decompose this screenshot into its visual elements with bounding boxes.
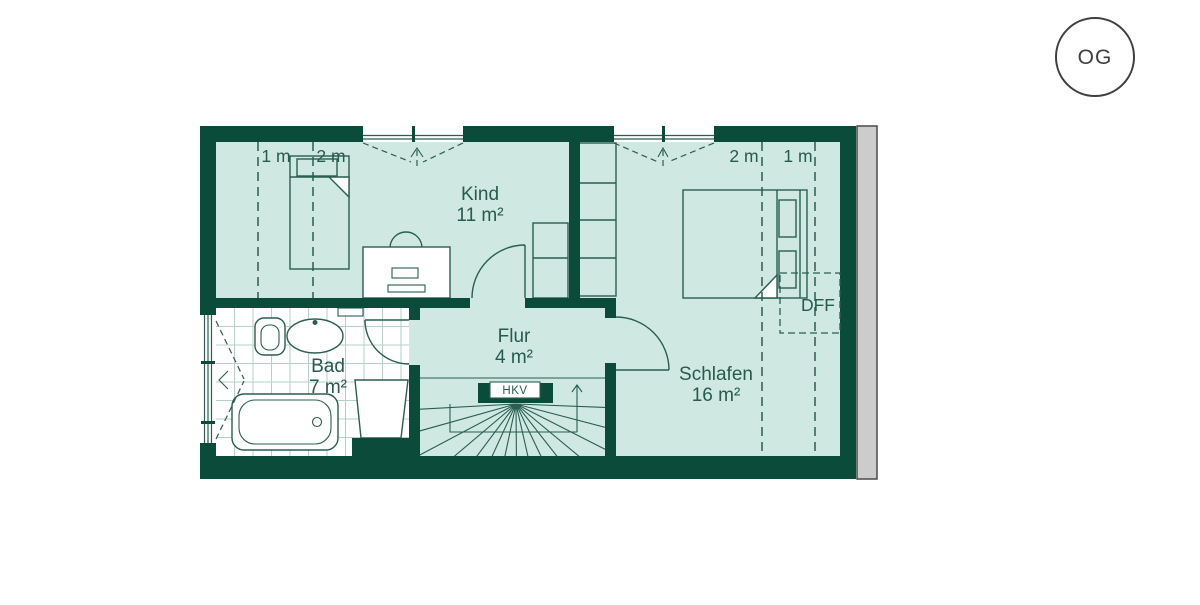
height-marker-right-2m: 2 m — [729, 146, 758, 166]
bad-corner-wall — [352, 438, 420, 456]
flur-schlafen-wall-stub — [605, 308, 616, 318]
window-top-schlafen — [614, 126, 714, 142]
room-area-kind: 11 m² — [456, 205, 503, 226]
left-wall-upper — [200, 142, 216, 315]
floor-badge: OG — [1056, 18, 1134, 96]
kind-schlafen-wall — [569, 142, 580, 298]
room-label-kind: Kind — [461, 184, 499, 205]
desk — [363, 247, 450, 298]
window-mullion — [201, 361, 215, 364]
height-marker-left-1m: 1 m — [261, 146, 290, 166]
room-label-flur: Flur — [498, 326, 531, 347]
floor-badge-label: OG — [1078, 46, 1113, 69]
floor-plan: Kind 11 m² Flur 4 m² Schlafen 16 m² Bad … — [0, 0, 1200, 600]
laundry-basket — [355, 380, 408, 438]
top-wall-middle — [463, 126, 614, 142]
hkv-label: HKV — [502, 385, 527, 397]
top-wall-left — [200, 126, 363, 142]
window-mullion — [412, 126, 415, 142]
height-marker-left-2m: 2 m — [316, 146, 345, 166]
flur-schlafen-wall-lower — [605, 363, 616, 456]
bad-flur-wall-stub — [409, 308, 420, 320]
window-mullion — [201, 421, 215, 424]
height-marker-right-1m: 1 m — [783, 146, 812, 166]
right-wall — [840, 142, 856, 479]
window-top-kind — [363, 126, 463, 142]
sink-faucet — [313, 320, 318, 325]
left-wall-lower — [200, 443, 216, 456]
bottom-wall — [200, 456, 856, 479]
kind-flur-wall-a — [216, 298, 470, 308]
party-wall-strip — [857, 126, 877, 479]
room-area-bad: 7 m² — [309, 377, 347, 398]
room-area-schlafen: 16 m² — [692, 385, 741, 406]
top-wall-right — [714, 126, 856, 142]
window-mullion — [662, 126, 665, 142]
floor-plan-canvas: Kind 11 m² Flur 4 m² Schlafen 16 m² Bad … — [0, 0, 1200, 600]
room-area-flur: 4 m² — [495, 347, 533, 368]
bad-flur-wall-lower — [409, 365, 420, 438]
bathtub — [232, 394, 338, 450]
room-label-schlafen: Schlafen — [679, 364, 753, 385]
kind-flur-wall-b — [525, 298, 616, 308]
room-label-bad: Bad — [311, 356, 345, 377]
bath-shelf — [338, 308, 363, 316]
dff-label: DFF — [801, 295, 835, 315]
